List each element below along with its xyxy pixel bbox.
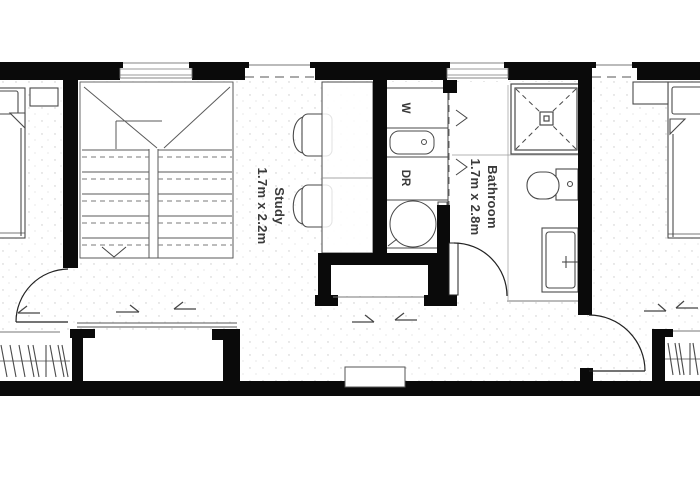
floor-plan-canvas: Study 1.7m x 2.2m Bathroom 1.7m x 2.8m W… [0, 0, 700, 500]
bathroom-name: Bathroom [485, 165, 500, 229]
bed-icon [668, 82, 700, 238]
sink-drain-icon [422, 140, 427, 145]
window-icon [243, 62, 316, 78]
svg-text:W: W [399, 103, 411, 114]
desk [322, 82, 373, 253]
nightstand [633, 82, 668, 104]
washer-box [385, 88, 448, 128]
sink-icon [390, 131, 434, 154]
bathroom-dims: 1.7m x 2.8m [468, 158, 483, 235]
window-icon [590, 62, 638, 78]
floor-plan: Study 1.7m x 2.2m Bathroom 1.7m x 2.8m W… [0, 0, 700, 500]
laundry-tub-icon [390, 201, 436, 247]
study-dims: 1.7m x 2.2m [255, 167, 270, 244]
wall-niche [345, 367, 405, 387]
shower-icon [511, 84, 581, 154]
dryer-box [385, 157, 448, 200]
bed-icon [0, 88, 25, 238]
toilet-icon [527, 169, 578, 200]
study-name: Study [272, 187, 287, 225]
window-icon [445, 62, 509, 78]
svg-text:DR: DR [399, 170, 411, 187]
window-icon [118, 62, 194, 78]
washer-label: W [399, 103, 411, 114]
nightstand [30, 88, 58, 106]
dryer-label: DR [399, 170, 411, 187]
vanity-icon [542, 228, 578, 292]
